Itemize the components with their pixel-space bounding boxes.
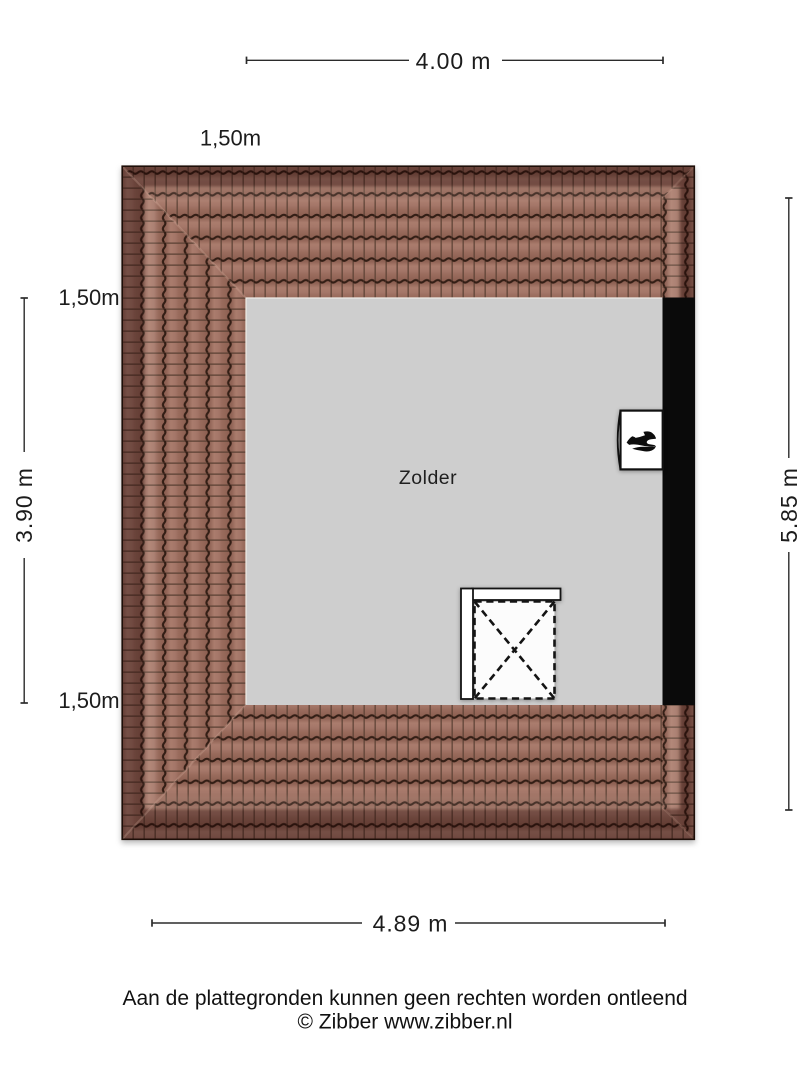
- svg-text:1,50m: 1,50m: [58, 285, 119, 310]
- svg-text:4.89 m: 4.89 m: [373, 911, 449, 937]
- svg-text:5.85 m: 5.85 m: [776, 467, 802, 543]
- svg-text:3.90 m: 3.90 m: [11, 467, 37, 543]
- svg-text:Zolder: Zolder: [399, 467, 457, 489]
- svg-text:1,50m: 1,50m: [200, 126, 261, 151]
- svg-text:© Zibber www.zibber.nl: © Zibber www.zibber.nl: [297, 1011, 512, 1034]
- svg-text:1,50m: 1,50m: [58, 688, 119, 713]
- svg-text:4.00 m: 4.00 m: [416, 48, 492, 74]
- svg-text:Aan de plattegronden kunnen ge: Aan de plattegronden kunnen geen rechten…: [122, 987, 687, 1010]
